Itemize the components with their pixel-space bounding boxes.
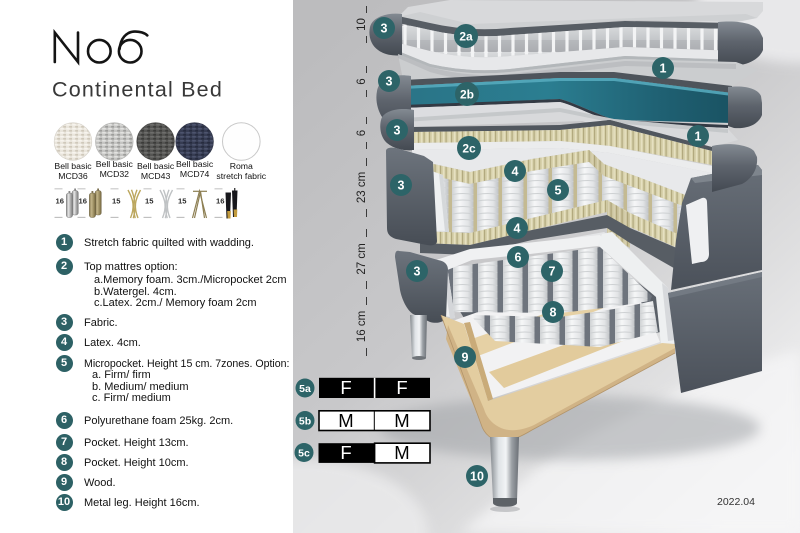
svg-text:10: 10 bbox=[356, 18, 368, 31]
svg-text:2022.04: 2022.04 bbox=[717, 496, 755, 508]
svg-text:1: 1 bbox=[695, 130, 702, 144]
svg-text:1: 1 bbox=[660, 62, 667, 76]
svg-text:16: 16 bbox=[56, 197, 64, 206]
svg-text:4: 4 bbox=[512, 165, 519, 179]
svg-text:F: F bbox=[340, 377, 351, 398]
svg-text:2c: 2c bbox=[462, 142, 476, 156]
svg-text:5c: 5c bbox=[298, 448, 310, 460]
svg-text:16: 16 bbox=[216, 197, 224, 206]
svg-text:3: 3 bbox=[386, 75, 393, 89]
svg-text:5b: 5b bbox=[299, 416, 311, 428]
svg-text:6: 6 bbox=[356, 78, 368, 84]
svg-text:5: 5 bbox=[555, 184, 562, 198]
svg-text:16 cm: 16 cm bbox=[356, 311, 368, 342]
svg-text:7: 7 bbox=[549, 265, 556, 279]
svg-text:F: F bbox=[340, 442, 351, 463]
svg-text:27 cm: 27 cm bbox=[356, 243, 368, 274]
svg-text:F: F bbox=[396, 377, 407, 398]
svg-text:23 cm: 23 cm bbox=[356, 172, 368, 203]
svg-text:M: M bbox=[394, 442, 409, 463]
svg-text:M: M bbox=[338, 410, 353, 431]
svg-text:16: 16 bbox=[79, 197, 87, 206]
svg-text:5a: 5a bbox=[299, 383, 311, 395]
svg-text:Continental Bed: Continental Bed bbox=[52, 78, 223, 102]
svg-text:2a: 2a bbox=[459, 30, 473, 44]
svg-text:2b: 2b bbox=[460, 88, 474, 102]
svg-text:3: 3 bbox=[414, 265, 421, 279]
svg-text:3: 3 bbox=[394, 124, 401, 138]
svg-text:15: 15 bbox=[112, 197, 121, 206]
svg-text:3: 3 bbox=[381, 22, 388, 36]
svg-text:8: 8 bbox=[550, 306, 557, 320]
svg-text:15: 15 bbox=[178, 197, 187, 206]
svg-text:3: 3 bbox=[398, 179, 405, 193]
svg-text:4: 4 bbox=[514, 222, 521, 236]
svg-text:M: M bbox=[394, 410, 409, 431]
svg-text:10: 10 bbox=[470, 470, 484, 484]
svg-text:15: 15 bbox=[145, 197, 154, 206]
svg-text:9: 9 bbox=[462, 351, 469, 365]
svg-text:6: 6 bbox=[515, 251, 522, 265]
svg-text:6: 6 bbox=[356, 130, 368, 136]
